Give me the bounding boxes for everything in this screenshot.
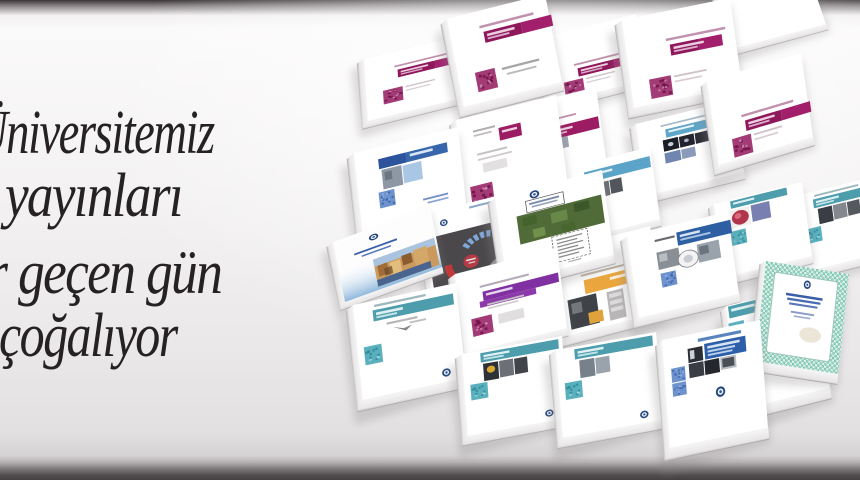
svg-text:çoğalıyor: çoğalıyor bbox=[0, 301, 179, 371]
svg-text:her geçen gün: her geçen gün bbox=[0, 237, 221, 307]
svg-text:yayınları: yayınları bbox=[0, 160, 182, 230]
svg-text:Üniversitemiz: Üniversitemiz bbox=[0, 97, 215, 166]
